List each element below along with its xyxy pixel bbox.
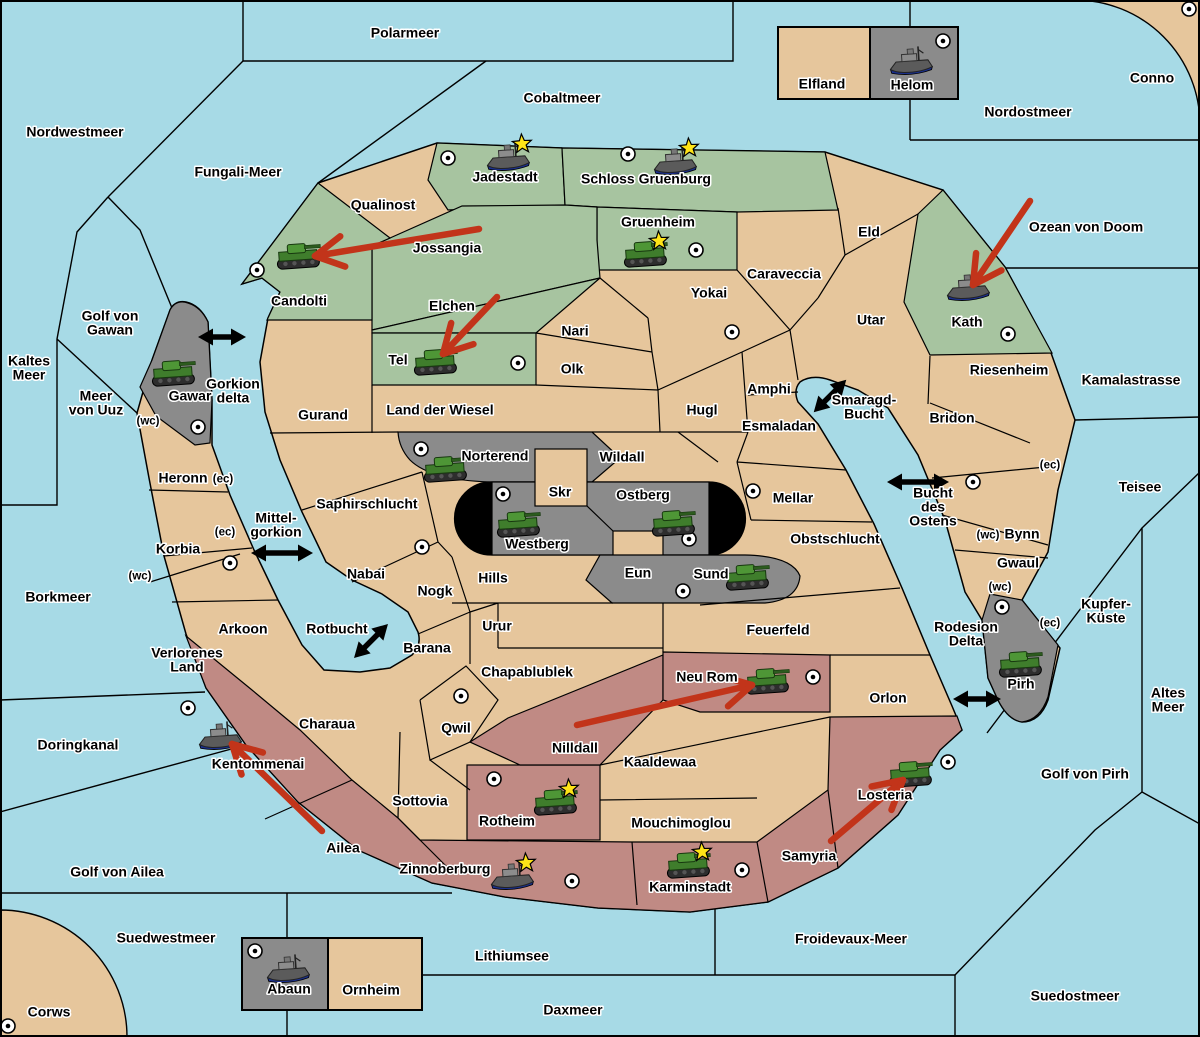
sea-label-golf-von-ailea: Golf von Ailea	[70, 864, 164, 880]
territory-label-kaaldewaa: Kaaldewaa	[624, 754, 697, 770]
sea-label-polarmeer: Polarmeer	[371, 25, 440, 41]
territory-label-nabai: Nabai	[347, 566, 385, 582]
sea-label-suedwestmeer: Suedwestmeer	[117, 930, 216, 946]
territory-marker[interactable]	[995, 600, 1009, 614]
territory-label-karminstadt: Karminstadt	[649, 879, 731, 895]
territory-marker[interactable]	[689, 243, 703, 257]
sea-label-ozean-von-doom: Ozean von Doom	[1029, 219, 1143, 235]
territory-label-urur: Urur	[482, 618, 512, 634]
coast-label-ec: (ec)	[1040, 618, 1061, 630]
territory-label-eun: Eun	[625, 565, 651, 581]
coast-label-wc: (wc)	[977, 530, 1000, 542]
coast-label-ec: (ec)	[215, 527, 236, 539]
territory-label-qualinost: Qualinost	[351, 197, 416, 213]
territory-label-hills: Hills	[478, 570, 508, 586]
sea-label-golf-von-pirh: Golf von Pirh	[1041, 766, 1129, 782]
territory-label-rotheim: Rotheim	[479, 813, 535, 829]
territory-label-orlon: Orlon	[869, 690, 906, 706]
sea-label-cobaltmeer: Cobaltmeer	[523, 90, 601, 106]
coast-label-wc: (wc)	[989, 582, 1012, 594]
territory-label-utar: Utar	[857, 312, 886, 328]
territory-marker[interactable]	[248, 944, 262, 958]
sea-label-altes-meer: AltesMeer	[1151, 685, 1185, 715]
sea-label-doringkanal: Doringkanal	[38, 737, 119, 753]
territory-label-feuerfeld: Feuerfeld	[746, 622, 809, 638]
territory-label-gurand: Gurand	[298, 407, 348, 423]
territory-label-kentommenai: Kentommenai	[212, 756, 305, 772]
territory-label-westberg: Westberg	[505, 536, 569, 552]
territory-label-samyria: Samyria	[782, 848, 837, 864]
territory-marker[interactable]	[565, 874, 579, 888]
sea-label-kaltes-meer: KaltesMeer	[8, 353, 50, 383]
territory-label-bridon: Bridon	[929, 410, 974, 426]
territory-label-amphi: Amphi	[747, 381, 791, 397]
territory-label-schloss-gruenburg: Schloss Gruenburg	[581, 171, 711, 187]
sea-label-fungali-meer: Fungali-Meer	[194, 164, 282, 180]
sea-label-daxmeer: Daxmeer	[543, 1002, 603, 1018]
territory-marker[interactable]	[487, 772, 501, 786]
territory-label-ostberg: Ostberg	[616, 487, 670, 503]
territory-label-olk: Olk	[561, 361, 584, 377]
territory-marker[interactable]	[806, 670, 820, 684]
territory-label-ornheim: Ornheim	[342, 982, 400, 998]
territory-marker[interactable]	[735, 863, 749, 877]
territory-label-gwaul: Gwaul	[997, 555, 1039, 571]
sea-label-froidevaux-meer: Froidevaux-Meer	[795, 931, 908, 947]
territory-marker[interactable]	[1182, 2, 1196, 16]
territory-label-land-der-wiesel: Land der Wiesel	[386, 402, 493, 418]
territory-marker[interactable]	[441, 151, 455, 165]
territory-marker[interactable]	[1001, 327, 1015, 341]
sea-label-teisee: Teisee	[1119, 479, 1162, 495]
territory-label-nari: Nari	[561, 323, 588, 339]
territory-label-losteria: Losteria	[858, 787, 913, 803]
territory-marker[interactable]	[191, 420, 205, 434]
territory-ornheim[interactable]	[328, 938, 422, 1010]
territory-label-arkoon: Arkoon	[219, 621, 268, 637]
territory-label-zinnoberburg: Zinnoberburg	[400, 861, 491, 877]
territory-label-elfland: Elfland	[799, 76, 846, 92]
territory-label-korbia: Korbia	[156, 541, 201, 557]
territory-marker[interactable]	[415, 540, 429, 554]
territory-label-ailea: Ailea	[326, 840, 360, 856]
coast-label-ec: (ec)	[213, 474, 234, 486]
sea-label-suedostmeer: Suedostmeer	[1031, 988, 1120, 1004]
territory-label-caraveccia: Caraveccia	[747, 266, 821, 282]
territory-label-esmaladan: Esmaladan	[742, 418, 816, 434]
coast-label-wc: (wc)	[129, 571, 152, 583]
territory-marker[interactable]	[250, 263, 264, 277]
territory-marker[interactable]	[511, 356, 525, 370]
territory-marker[interactable]	[746, 484, 760, 498]
territory-label-sottovia: Sottovia	[392, 793, 447, 809]
territory-marker[interactable]	[725, 325, 739, 339]
territory-label-eld: Eld	[858, 224, 880, 240]
territory-label-nilldall: Nilldall	[552, 740, 598, 756]
territory-marker[interactable]	[1, 1019, 15, 1033]
territory-label-norterend: Norterend	[462, 448, 529, 464]
territory-marker[interactable]	[181, 701, 195, 715]
territory-marker[interactable]	[621, 147, 635, 161]
territory-marker[interactable]	[414, 442, 428, 456]
sea-label-rotbucht: Rotbucht	[306, 621, 368, 637]
territory-label-kath: Kath	[951, 314, 982, 330]
sea-label-kupfer-k-ste: Kupfer-Küste	[1081, 596, 1131, 626]
sea-label-lithiumsee: Lithiumsee	[475, 948, 549, 964]
territory-label-wildall: Wildall	[600, 449, 645, 465]
territory-marker[interactable]	[966, 475, 980, 489]
territory-marker[interactable]	[223, 556, 237, 570]
territory-label-gawar: Gawar	[169, 388, 212, 404]
sea-label-golf-von-gawan: Golf vonGawan	[82, 308, 139, 338]
territory-label-skr: Skr	[549, 484, 572, 500]
sea-label-kamalastrasse: Kamalastrasse	[1082, 372, 1181, 388]
territory-label-candolti: Candolti	[271, 293, 327, 309]
sea-label-nordostmeer: Nordostmeer	[984, 104, 1072, 120]
sea-label-borkmeer: Borkmeer	[25, 589, 91, 605]
territory-label-jossangia: Jossangia	[413, 240, 482, 256]
game-map: (wc)(ec)(ec)(wc)(ec)(wc)(wc)(ec) Polarme…	[0, 0, 1200, 1037]
coast-label-ec: (ec)	[1040, 460, 1061, 472]
territory-label-corws: Corws	[28, 1004, 71, 1020]
territory-label-heronn: Heronn	[159, 470, 208, 486]
territory-label-helom: Helom	[891, 77, 934, 93]
territory-label-mouchimoglou: Mouchimoglou	[631, 815, 731, 831]
territory-label-bynn: Bynn	[1005, 526, 1040, 542]
territory-label-riesenheim: Riesenheim	[970, 362, 1049, 378]
territory-label-sund: Sund	[694, 566, 729, 582]
territory-label-obstschlucht: Obstschlucht	[790, 531, 880, 547]
sea-label-nordwestmeer: Nordwestmeer	[26, 124, 124, 140]
territory-label-mellar: Mellar	[773, 490, 814, 506]
territory-label-gruenheim: Gruenheim	[621, 214, 695, 230]
territory-label-qwil: Qwil	[441, 720, 471, 736]
territory-label-conno: Conno	[1130, 70, 1174, 86]
territory-marker[interactable]	[936, 34, 950, 48]
territory-label-elchen: Elchen	[429, 298, 475, 314]
territory-label-jadestadt: Jadestadt	[472, 169, 538, 185]
territory-label-tel: Tel	[388, 352, 407, 368]
sea-label-mittel-gorkion: Mittel-gorkion	[250, 510, 301, 540]
territory-label-yokai: Yokai	[691, 285, 727, 301]
territory-label-barana: Barana	[403, 640, 451, 656]
territory-marker[interactable]	[941, 755, 955, 769]
territory-label-pirh: Pirh	[1007, 676, 1034, 692]
territory-label-hugl: Hugl	[686, 402, 717, 418]
territory-label-charaua: Charaua	[299, 716, 355, 732]
territory-label-chapablublek: Chapablublek	[481, 664, 573, 680]
territory-marker[interactable]	[454, 689, 468, 703]
coast-label-wc: (wc)	[137, 416, 160, 428]
territory-marker[interactable]	[676, 584, 690, 598]
territory-label-abaun: Abaun	[267, 981, 311, 997]
territory-label-nogk: Nogk	[418, 583, 453, 599]
territory-marker[interactable]	[496, 487, 510, 501]
territory-label-neu-rom: Neu Rom	[676, 669, 737, 685]
territory-label-saphirschlucht: Saphirschlucht	[316, 496, 417, 512]
